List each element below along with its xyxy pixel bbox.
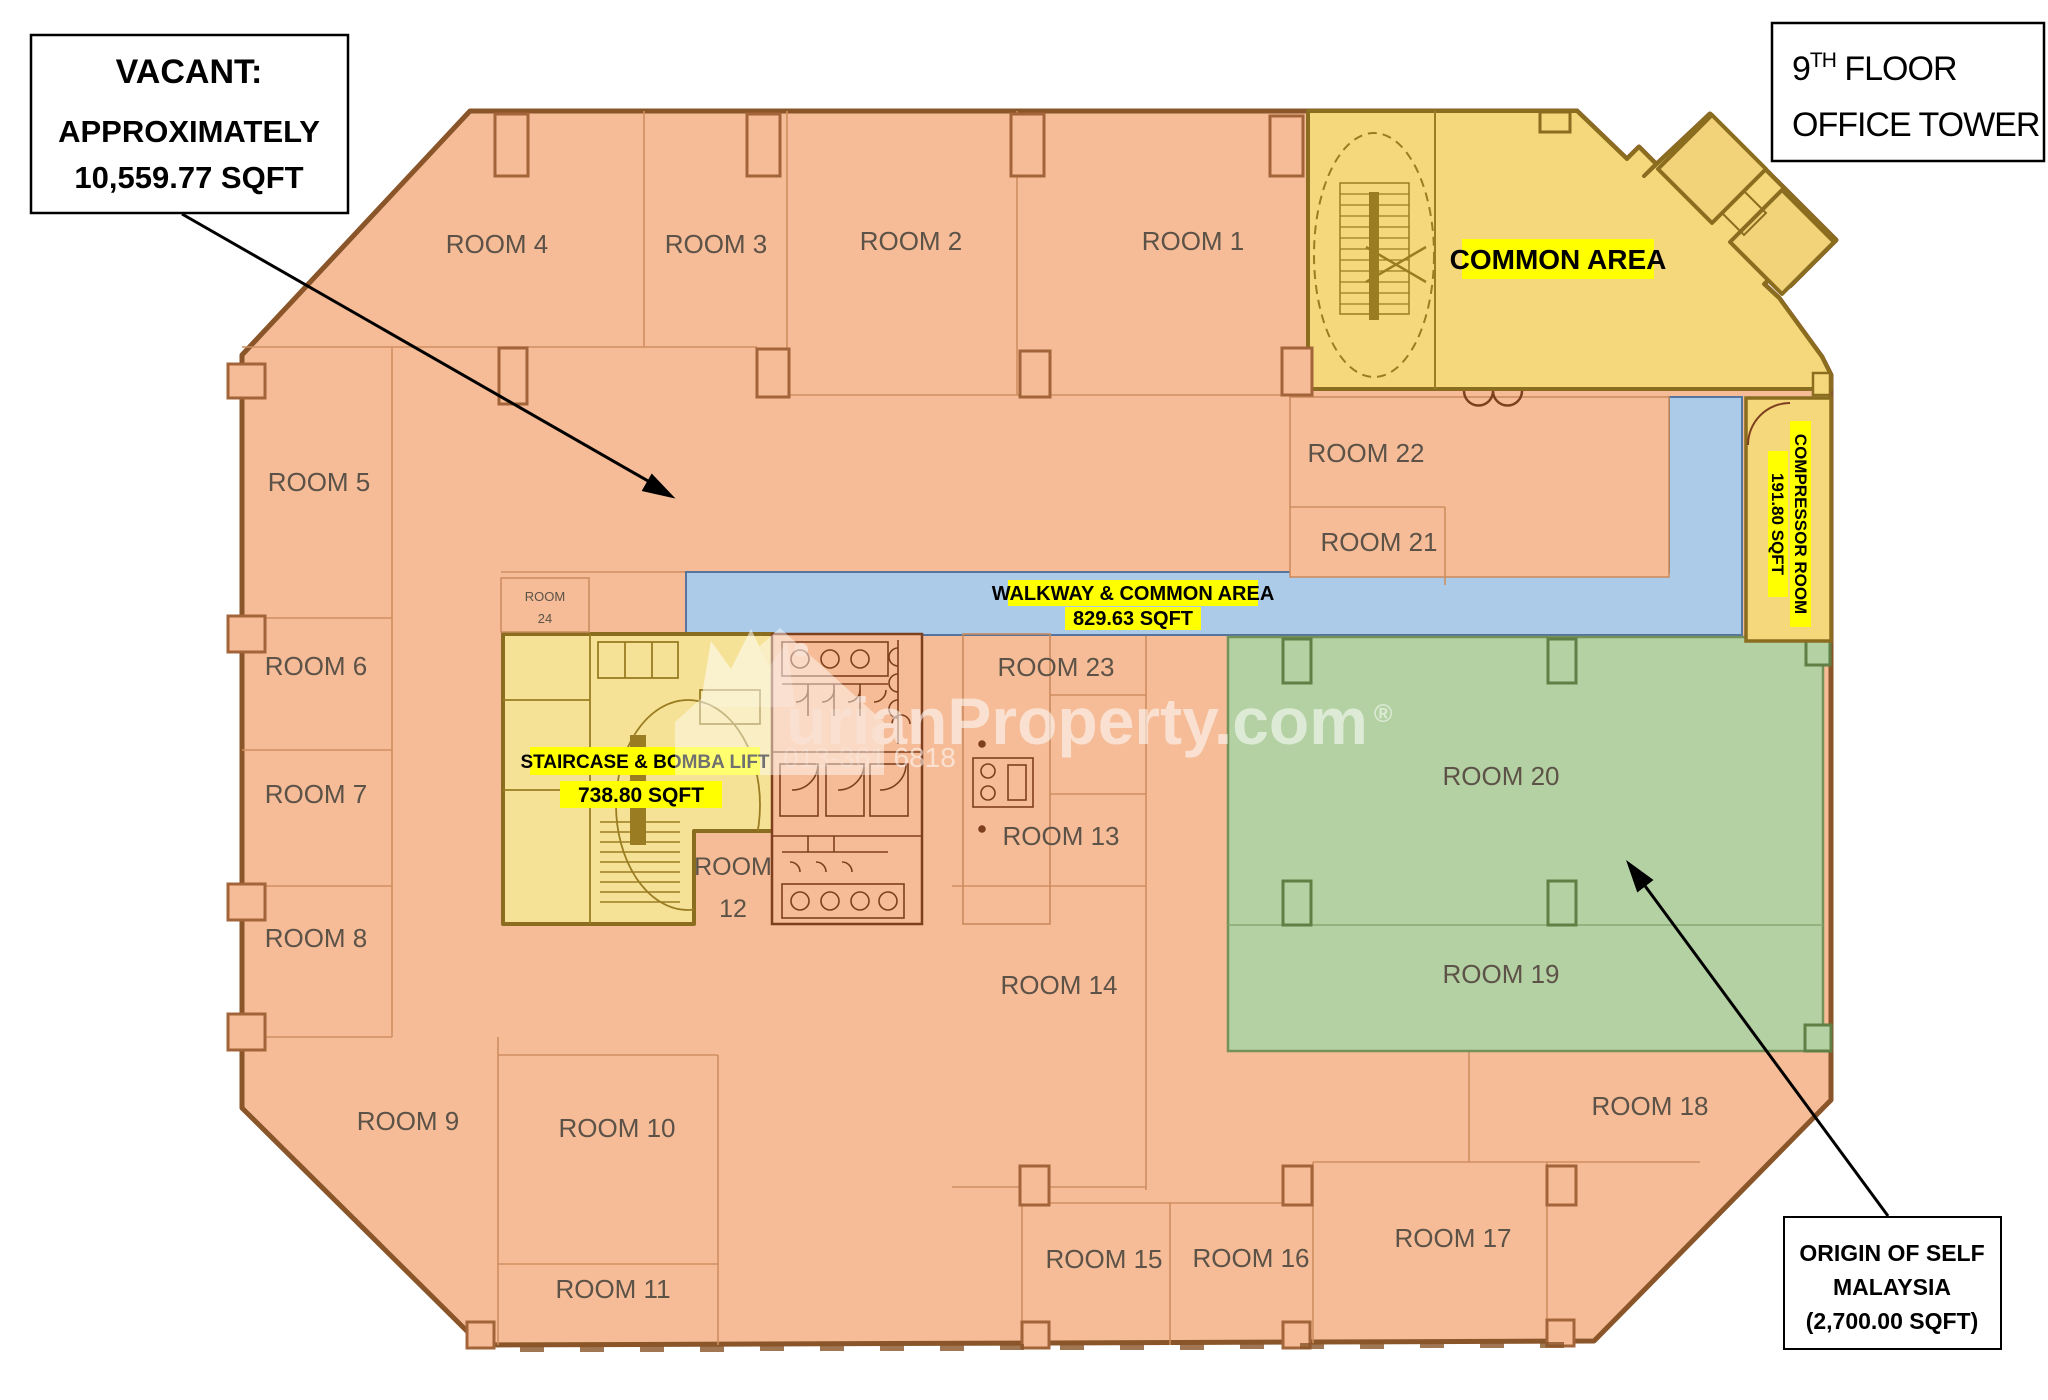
- svg-text:ROOM 6: ROOM 6: [265, 651, 368, 681]
- svg-text:®: ®: [1374, 700, 1393, 728]
- svg-text:191.80 SQFT: 191.80 SQFT: [1768, 473, 1787, 576]
- svg-text:ROOM 15: ROOM 15: [1045, 1244, 1162, 1274]
- svg-text:ROOM 19: ROOM 19: [1442, 959, 1559, 989]
- svg-text:ROOM 20: ROOM 20: [1442, 761, 1559, 791]
- svg-text:ROOM 9: ROOM 9: [357, 1106, 460, 1136]
- svg-text:ORIGIN OF SELF: ORIGIN OF SELF: [1799, 1240, 1984, 1266]
- svg-text:829.63 SQFT: 829.63 SQFT: [1073, 608, 1193, 630]
- svg-text:738.80 SQFT: 738.80 SQFT: [578, 784, 704, 807]
- svg-text:ROOM 1: ROOM 1: [1142, 226, 1245, 256]
- svg-text:MALAYSIA: MALAYSIA: [1833, 1274, 1951, 1300]
- svg-text:24: 24: [538, 611, 552, 626]
- svg-text:ROOM 5: ROOM 5: [268, 467, 371, 497]
- svg-text:ROOM 13: ROOM 13: [1002, 821, 1119, 851]
- svg-text:ROOM 3: ROOM 3: [665, 229, 768, 259]
- svg-text:ROOM: ROOM: [525, 589, 565, 604]
- svg-text:ROOM 7: ROOM 7: [265, 779, 368, 809]
- svg-text:ROOM 22: ROOM 22: [1307, 438, 1424, 468]
- svg-text:VACANT:: VACANT:: [116, 53, 263, 91]
- svg-text:12: 12: [719, 895, 747, 923]
- svg-text:ROOM 11: ROOM 11: [555, 1274, 670, 1304]
- svg-text:(2,700.00 SQFT): (2,700.00 SQFT): [1806, 1308, 1979, 1334]
- svg-text:ROOM 2: ROOM 2: [860, 226, 963, 256]
- svg-text:ROOM 18: ROOM 18: [1591, 1091, 1708, 1121]
- svg-text:ROOM: ROOM: [694, 853, 772, 881]
- svg-text:ROOM 16: ROOM 16: [1192, 1243, 1309, 1273]
- svg-text:APPROXIMATELY: APPROXIMATELY: [58, 114, 320, 149]
- svg-text:10,559.77 SQFT: 10,559.77 SQFT: [74, 160, 303, 195]
- svg-text:ROOM 17: ROOM 17: [1394, 1223, 1511, 1253]
- svg-text:ROOM 8: ROOM 8: [265, 923, 368, 953]
- svg-text:ROOM 14: ROOM 14: [1000, 970, 1117, 1000]
- svg-text:ROOM 4: ROOM 4: [446, 229, 549, 259]
- svg-text:WALKWAY & COMMON AREA: WALKWAY & COMMON AREA: [992, 583, 1275, 605]
- svg-text:ROOM 21: ROOM 21: [1320, 527, 1437, 557]
- svg-text:ROOM 10: ROOM 10: [558, 1113, 675, 1143]
- svg-text:COMPRESSOR ROOM: COMPRESSOR ROOM: [1791, 434, 1810, 614]
- svg-text:OFFICE TOWER: OFFICE TOWER: [1792, 106, 2039, 144]
- svg-text:ROOM 23: ROOM 23: [997, 652, 1114, 682]
- svg-text:013-361 6818: 013-361 6818: [783, 742, 956, 773]
- svg-text:COMMON AREA: COMMON AREA: [1450, 244, 1667, 275]
